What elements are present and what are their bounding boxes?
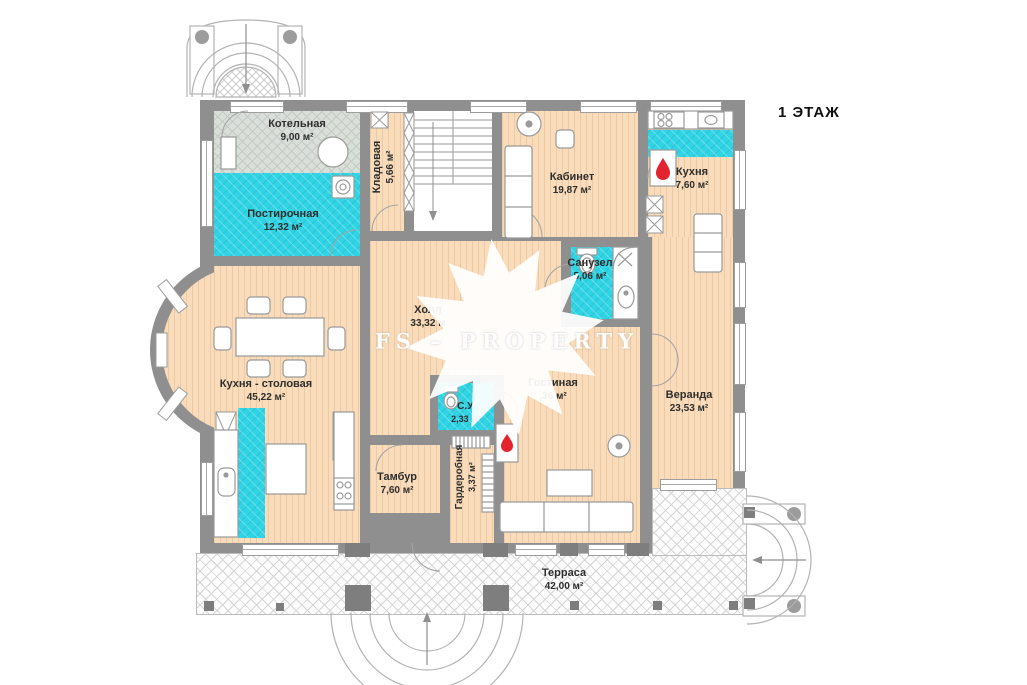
room-kitchen-dining xyxy=(214,266,360,543)
front-steps xyxy=(331,612,523,685)
room-label-pantry: Кладовая5,66 м² xyxy=(371,141,397,194)
staircase xyxy=(414,111,492,231)
kitchen-dining-tile-strip xyxy=(238,408,265,538)
terrace-column xyxy=(653,601,662,610)
room-label-living: Гостиная,36 м² xyxy=(528,377,578,403)
terrace-floor-right xyxy=(652,488,747,556)
terrace-column xyxy=(345,585,371,611)
room-label-veranda: Веранда23,53 м² xyxy=(666,389,713,415)
terrace-column xyxy=(204,601,214,611)
terrace-column xyxy=(729,601,738,610)
window xyxy=(230,101,284,113)
entrance-arrow xyxy=(242,24,250,94)
window xyxy=(515,544,557,556)
room-label-terrace: Терраса42,00 м² xyxy=(542,567,586,593)
window xyxy=(470,101,527,113)
room-label-kitchen-dining: Кухня - столовая45,22 м² xyxy=(220,378,312,404)
room-label-office: Кабинет19,87 м² xyxy=(550,171,595,197)
room-label-boiler: Котельная9,00 м² xyxy=(268,118,326,144)
room-label-laundry: Постирочная12,32 м² xyxy=(247,208,318,234)
terrace-column xyxy=(570,601,579,610)
room-living xyxy=(504,327,640,543)
entrance-arrow xyxy=(752,556,806,564)
window xyxy=(201,140,213,227)
entrance-arrow xyxy=(423,612,431,665)
window xyxy=(734,262,746,308)
window xyxy=(346,101,408,113)
window xyxy=(580,101,637,113)
room-label-wc: С.У.2,33 м² xyxy=(451,401,481,425)
room-label-hall: Холл33,32 м xyxy=(410,304,445,330)
room-label-bathroom: Санузел5,06 м² xyxy=(567,257,612,283)
window xyxy=(201,462,213,516)
room-veranda xyxy=(652,237,733,488)
window xyxy=(660,479,717,491)
side-steps xyxy=(743,496,811,624)
terrace-column xyxy=(483,585,509,611)
window xyxy=(734,150,746,210)
room-label-kitchen: Кухня7,60 м² xyxy=(676,166,709,192)
window xyxy=(734,323,746,385)
floor-plan: Котельная9,00 м² Постирочная12,32 м² Кла… xyxy=(0,0,1027,685)
window xyxy=(650,101,722,113)
window xyxy=(242,544,339,556)
kitchen-tile-strip xyxy=(648,130,733,157)
floor-title: 1 ЭТАЖ xyxy=(778,104,840,121)
terrace-column xyxy=(276,603,284,611)
wall-pilaster xyxy=(345,543,370,557)
wall-pilaster xyxy=(560,543,578,556)
window xyxy=(588,544,625,556)
room-label-vestibule: Тамбур7,60 м² xyxy=(377,471,417,497)
back-porch xyxy=(187,20,305,97)
watermark-text: FS – PROPERTY xyxy=(375,329,639,354)
room-label-wardrobe: Гардеробная3,37 м² xyxy=(454,445,478,510)
window xyxy=(734,412,746,472)
wall-pilaster xyxy=(483,543,508,557)
wall-pilaster xyxy=(627,543,649,556)
